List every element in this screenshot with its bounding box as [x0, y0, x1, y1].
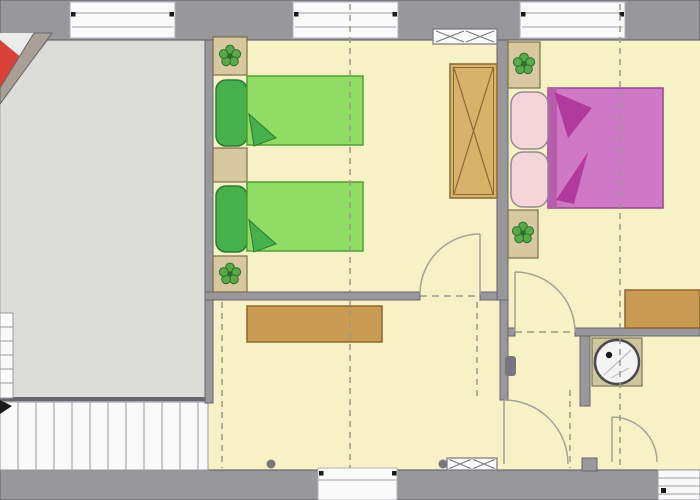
wardrobe — [450, 64, 497, 198]
shower-basin — [595, 340, 639, 384]
nightstand-2 — [213, 148, 247, 182]
wall-between-bedrooms — [497, 40, 508, 300]
bathroom-fixture-knob — [505, 356, 516, 376]
stair-landing-edge — [0, 397, 208, 401]
exterior-stairs — [658, 470, 700, 500]
wall-stub-bedroom2-door — [508, 328, 515, 336]
window-bottom — [318, 468, 397, 500]
shower-unit — [592, 338, 642, 386]
exterior-stairs-slab — [658, 470, 700, 500]
stair-flight-lower — [0, 402, 208, 470]
double-bed-blanket-edge — [548, 88, 557, 208]
window-top-3 — [520, 2, 625, 38]
window-corner-dot — [392, 471, 397, 476]
window-top-2 — [293, 2, 398, 38]
wall-pier — [582, 458, 597, 471]
radiator-body — [433, 29, 497, 44]
wall-shower-partition — [580, 336, 590, 406]
gallery-terrace-floor — [0, 40, 205, 400]
window-corner-dot — [319, 471, 324, 476]
floor-plan-svg — [0, 0, 700, 500]
double-bed-pillow-2 — [511, 152, 548, 207]
stair-corner-dot — [661, 488, 666, 493]
wall-bedroom2-bathroom — [575, 328, 700, 336]
radiator-valve — [439, 460, 448, 469]
window-glass — [318, 468, 397, 500]
shower-drain — [606, 352, 612, 358]
door-stop — [267, 460, 276, 469]
floor-plan-canvas — [0, 0, 700, 500]
sideboard — [247, 306, 382, 342]
twin-bed-2-pillow — [216, 186, 247, 252]
wall-stub-bedroom1-door — [480, 292, 497, 300]
twin-bed-1-pillow — [216, 80, 247, 146]
wall-hallway-bathroom — [500, 300, 508, 400]
dresser — [625, 290, 700, 328]
wall-gallery-bedroom — [205, 40, 213, 403]
window-top-1 — [70, 2, 175, 38]
radiator-body — [447, 458, 497, 470]
wall-bedroom1-hallway — [205, 292, 420, 300]
double-bed-pillow-1 — [511, 92, 548, 149]
radiator-1 — [433, 29, 497, 44]
radiator-2 — [439, 458, 498, 470]
